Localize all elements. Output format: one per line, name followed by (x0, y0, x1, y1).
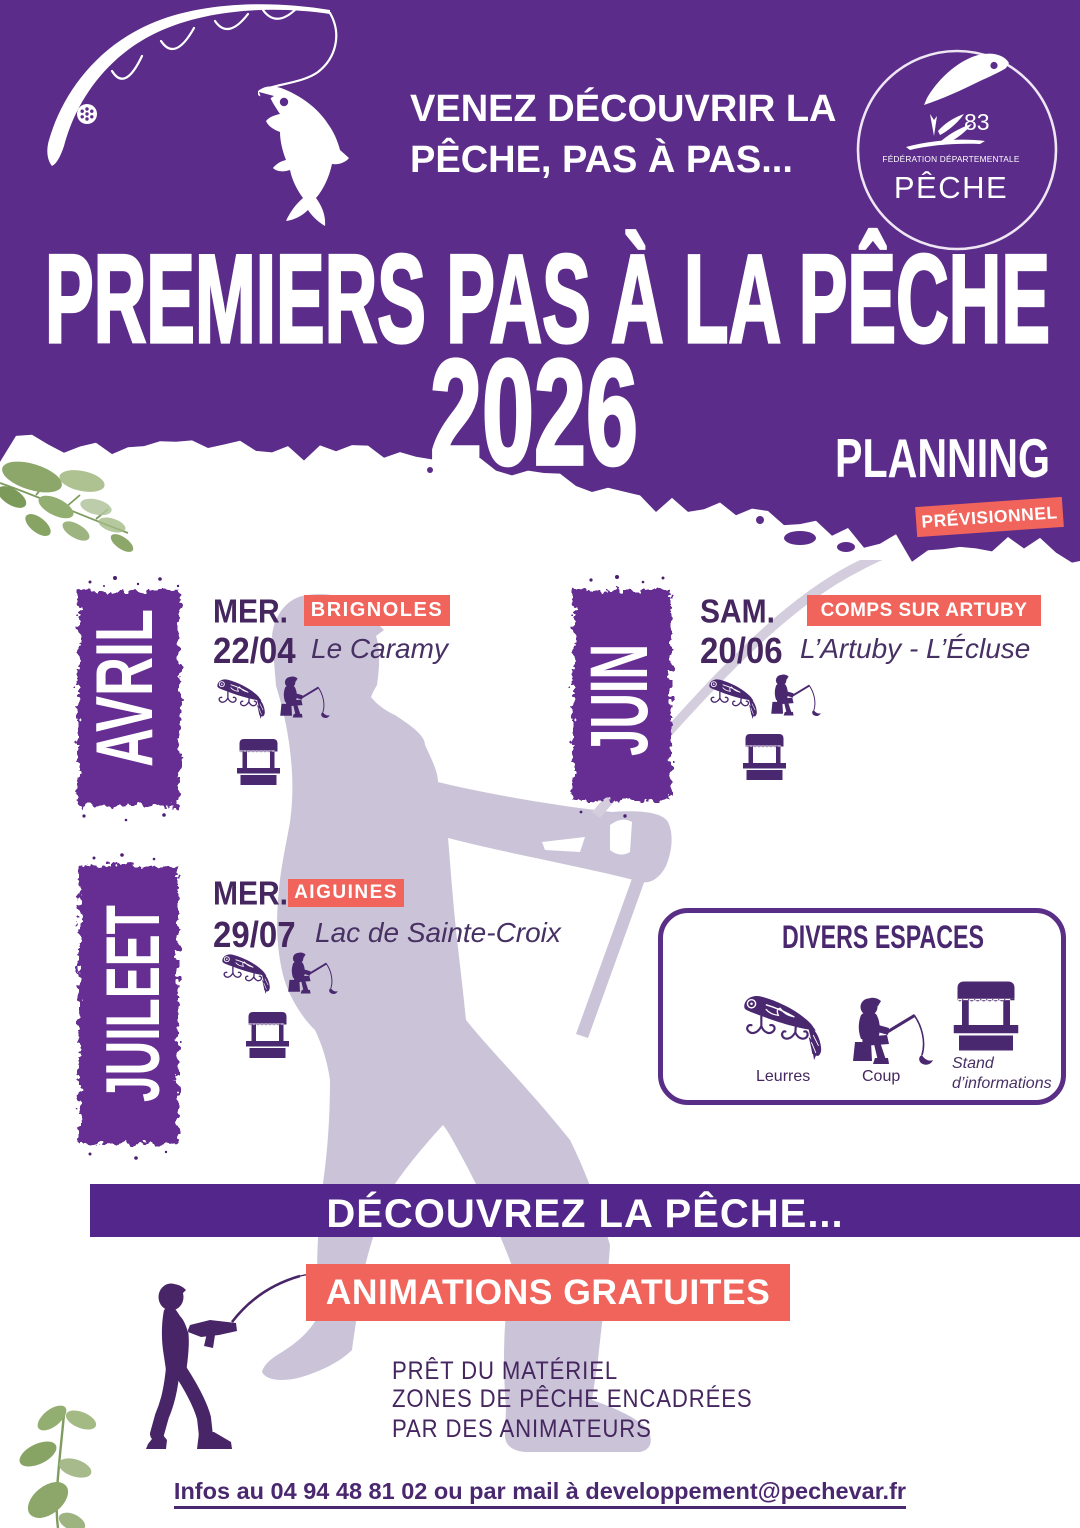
svg-text:JUIN: JUIN (574, 644, 665, 756)
svg-text:2026: 2026 (430, 330, 638, 480)
svg-text:DIVERS ESPACES: DIVERS ESPACES (782, 919, 984, 955)
svg-text:AVRIL: AVRIL (79, 609, 170, 767)
svg-text:JUILEET: JUILEET (92, 905, 176, 1102)
svg-text:PLANNING: PLANNING (835, 429, 1050, 480)
